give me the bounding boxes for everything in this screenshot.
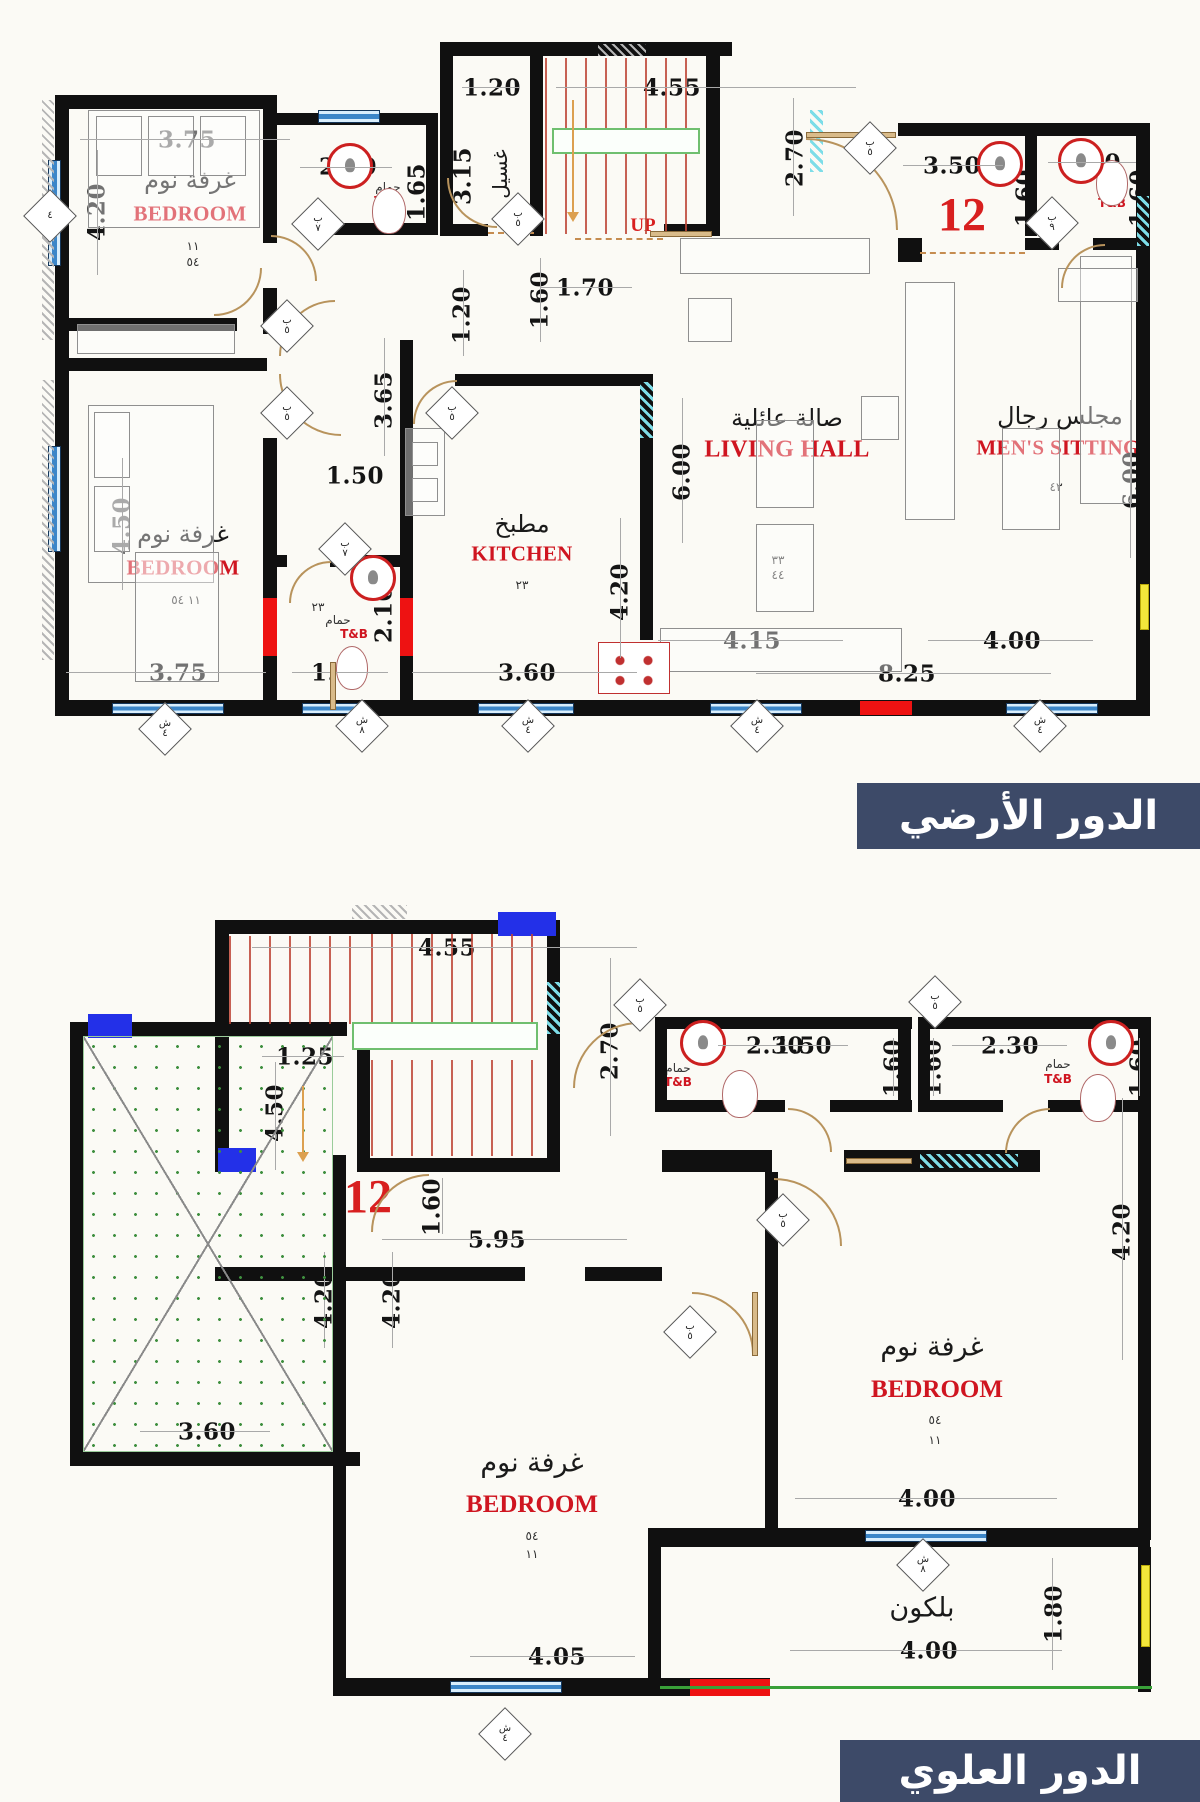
door-tag-text: ب٥: [269, 308, 305, 344]
dimension-line: [470, 1656, 635, 1657]
dimension-line: [1052, 1558, 1053, 1670]
bedmid-code2: ١١: [526, 1547, 539, 1561]
wall: [263, 438, 277, 715]
wall: [918, 1017, 930, 1112]
dimension-line: [933, 1038, 934, 1096]
dimension-line: [1139, 1038, 1140, 1096]
wall: [898, 238, 922, 262]
dimension-line: [790, 1650, 1062, 1651]
dimension-line: [384, 338, 385, 456]
dimension-line: [903, 165, 1003, 166]
dimension-line: [300, 167, 392, 168]
dimension-line: [1130, 400, 1131, 558]
dim-bedmid-width: 4.05: [528, 1644, 586, 1671]
wall: [918, 1100, 1003, 1112]
gray-hatch: [598, 44, 646, 56]
door-tag-text: ش٤: [1022, 708, 1058, 744]
door-tag-text: ب٧: [327, 531, 363, 567]
cyan-hatch: [640, 382, 653, 438]
bedmid-code1: ٥٤: [526, 1529, 539, 1543]
dimension-line: [412, 672, 637, 673]
dimension-line: [928, 640, 1093, 641]
furniture: [861, 396, 899, 440]
door-tag-text: ب٥: [500, 201, 536, 237]
furniture: [200, 116, 246, 176]
floor-plan-canvas: 3.75 4.20 غرفة نوم BEDROOM ١١ ٥٤ 2.00 1.…: [0, 0, 1200, 1802]
furniture: [756, 524, 814, 612]
dimension-line: [292, 672, 388, 673]
dim-uhall-595: 5.95: [468, 1227, 526, 1254]
stair-direction-arrow: [572, 100, 574, 212]
stair-landing: [552, 128, 700, 154]
vent-icon: [1088, 1020, 1134, 1066]
dimension-line: [718, 1045, 848, 1046]
vent-icon: [680, 1020, 726, 1066]
door-leaf-icon: [846, 1158, 912, 1164]
tbb-name-ar: حمام: [1045, 1057, 1070, 1071]
dimension-line: [540, 258, 541, 342]
wall: [898, 1017, 911, 1112]
red-marker: [263, 598, 277, 656]
bedright-code1: ٥٤: [929, 1413, 942, 1427]
dimension-line: [66, 672, 266, 673]
upper-floor-title: الدور العلوي: [840, 1740, 1200, 1802]
furniture: [905, 282, 955, 520]
furniture: [94, 412, 130, 478]
dimension-line: [252, 947, 637, 948]
wall: [55, 358, 267, 371]
bedright-name-en: BEDROOM: [871, 1376, 1003, 1404]
stove-icon: [598, 642, 670, 694]
toilet-icon: [372, 188, 406, 234]
door-tag-text: ب٥: [765, 1202, 801, 1238]
blue-marker: [498, 912, 556, 936]
toilet-icon: [1080, 1074, 1116, 1122]
arrow-head-icon: [567, 212, 579, 222]
wall: [455, 374, 653, 386]
opening-dashed-line: [575, 238, 663, 240]
red-marker: [860, 701, 912, 715]
cyan-hatch: [1137, 196, 1149, 246]
tba-name-ar: حمام: [665, 1061, 690, 1075]
upper-floor-title-text: الدور العلوي: [898, 1748, 1141, 1794]
furniture: [148, 116, 194, 176]
door-leaf-icon: [752, 1292, 758, 1356]
gray-hatch: [42, 380, 54, 660]
door-tag-text: ب٥: [917, 984, 953, 1020]
dimension-line: [682, 398, 683, 543]
red-marker: [400, 598, 413, 656]
dimension-line: [80, 139, 290, 140]
wall: [547, 920, 560, 1172]
vent-icon: [1058, 138, 1104, 184]
balcony-edge-line: [660, 1686, 1152, 1689]
dimension-line: [540, 287, 632, 288]
tba-name-en: T&B: [664, 1075, 692, 1089]
furniture: [1002, 428, 1060, 530]
furniture: [94, 486, 130, 552]
stair-landing: [352, 1022, 538, 1050]
toilet-icon: [722, 1070, 758, 1118]
wall: [440, 224, 488, 236]
furniture: [412, 478, 438, 502]
wall: [70, 1022, 83, 1466]
dimension-line: [1048, 162, 1136, 163]
door-tag-text: ش٤: [510, 708, 546, 744]
gray-hatch: [352, 905, 407, 919]
door-tag-text: ب٥: [672, 1314, 708, 1350]
ground-floor-title: الدور الأرضي: [857, 783, 1200, 849]
dim-tba-2: 1.50: [774, 1033, 832, 1060]
blue-marker: [88, 1014, 132, 1038]
dimension-line: [893, 1038, 894, 1096]
stair-treads: [371, 1060, 547, 1156]
dimension-line: [382, 1239, 627, 1240]
dim-tbb-1: 2.30: [981, 1033, 1039, 1060]
dimension-line: [952, 1045, 1067, 1046]
yellow-marker: [1141, 1565, 1150, 1647]
dimension-line: [1122, 1098, 1123, 1360]
bedright-code2: ١١: [929, 1433, 942, 1447]
dimension-line: [556, 87, 856, 88]
furniture: [756, 420, 814, 508]
furniture: [688, 298, 732, 342]
bedright-name-ar: غرفة نوم: [880, 1332, 983, 1363]
wall: [70, 1452, 360, 1466]
wall: [662, 1150, 772, 1172]
balcony-name-ar: بلكون: [889, 1593, 954, 1624]
dimension-line: [97, 150, 98, 275]
furniture: [660, 628, 902, 672]
door-tag-text: ب٩: [1034, 205, 1070, 241]
door-tag-text: ش٨: [905, 1547, 941, 1583]
dim-bedright-width: 4.00: [898, 1486, 956, 1513]
dimension-line: [462, 87, 520, 88]
wall: [357, 1158, 560, 1172]
window-marker: [450, 1681, 562, 1693]
bedmid-name-en: BEDROOM: [466, 1491, 598, 1519]
door-tag-text: ش٤: [739, 708, 775, 744]
ground-floor-title-text: الدور الأرضي: [899, 793, 1158, 839]
tbb-name-en: T&B: [1044, 1072, 1072, 1086]
dimension-line: [795, 1498, 1057, 1499]
wall: [277, 555, 287, 567]
furniture: [135, 552, 219, 682]
stair-direction-arrow: [302, 1086, 304, 1152]
window-marker: [318, 110, 380, 123]
vent-icon: [977, 141, 1023, 187]
wall: [655, 1100, 785, 1112]
dimension-line: [756, 673, 1051, 674]
door-tag-text: ش٤: [487, 1716, 523, 1752]
furniture: [77, 324, 235, 354]
dimension-line: [392, 1252, 393, 1348]
dimension-line: [620, 518, 621, 658]
wall: [357, 1048, 370, 1172]
door-tag-text: ش٤: [147, 711, 183, 747]
door-tag-text: ٤: [32, 198, 68, 234]
wall: [440, 42, 732, 56]
wall: [440, 56, 453, 236]
door-tag-text: ب٥: [434, 395, 470, 431]
dimension-line: [793, 98, 794, 216]
dimension-line: [442, 1178, 443, 1234]
door-leaf-icon: [330, 662, 336, 710]
furniture: [96, 116, 142, 176]
door-leaf-icon: [650, 231, 712, 237]
dimension-line: [463, 270, 464, 356]
door-tag-text: ب٥: [622, 987, 658, 1023]
opening-dashed-line: [920, 252, 1025, 254]
bedmid-name-ar: غرفة نوم: [480, 1448, 583, 1479]
door-tag-text: ب٧: [300, 206, 336, 242]
door-tag-text: ش٨: [344, 708, 380, 744]
terrace-open-area: [83, 1036, 333, 1452]
door-tag-text: ب٥: [852, 130, 888, 166]
door-tag-text: ب٥: [269, 395, 305, 431]
wall: [898, 123, 1150, 136]
wall: [333, 1155, 346, 1694]
dimension-line: [122, 458, 123, 590]
dim-balcony-height: 1.80: [1041, 1585, 1068, 1643]
arrow-head-icon: [297, 1152, 309, 1162]
wall: [263, 95, 277, 243]
stair-treads: [229, 936, 355, 1024]
wall: [426, 113, 438, 235]
wall: [648, 1528, 661, 1694]
dim-balcony-width: 4.00: [900, 1638, 958, 1665]
cyan-hatch: [547, 982, 560, 1034]
wall: [585, 1267, 662, 1281]
wall: [830, 1100, 912, 1112]
cyan-hatch: [920, 1154, 1018, 1168]
wall: [706, 42, 720, 236]
furniture: [680, 238, 870, 274]
toilet-icon: [336, 646, 368, 690]
dimension-line: [658, 640, 843, 641]
wall: [655, 1017, 667, 1112]
yellow-marker: [1140, 584, 1149, 630]
furniture: [412, 442, 438, 466]
wall: [55, 95, 277, 109]
vent-icon: [327, 143, 373, 189]
